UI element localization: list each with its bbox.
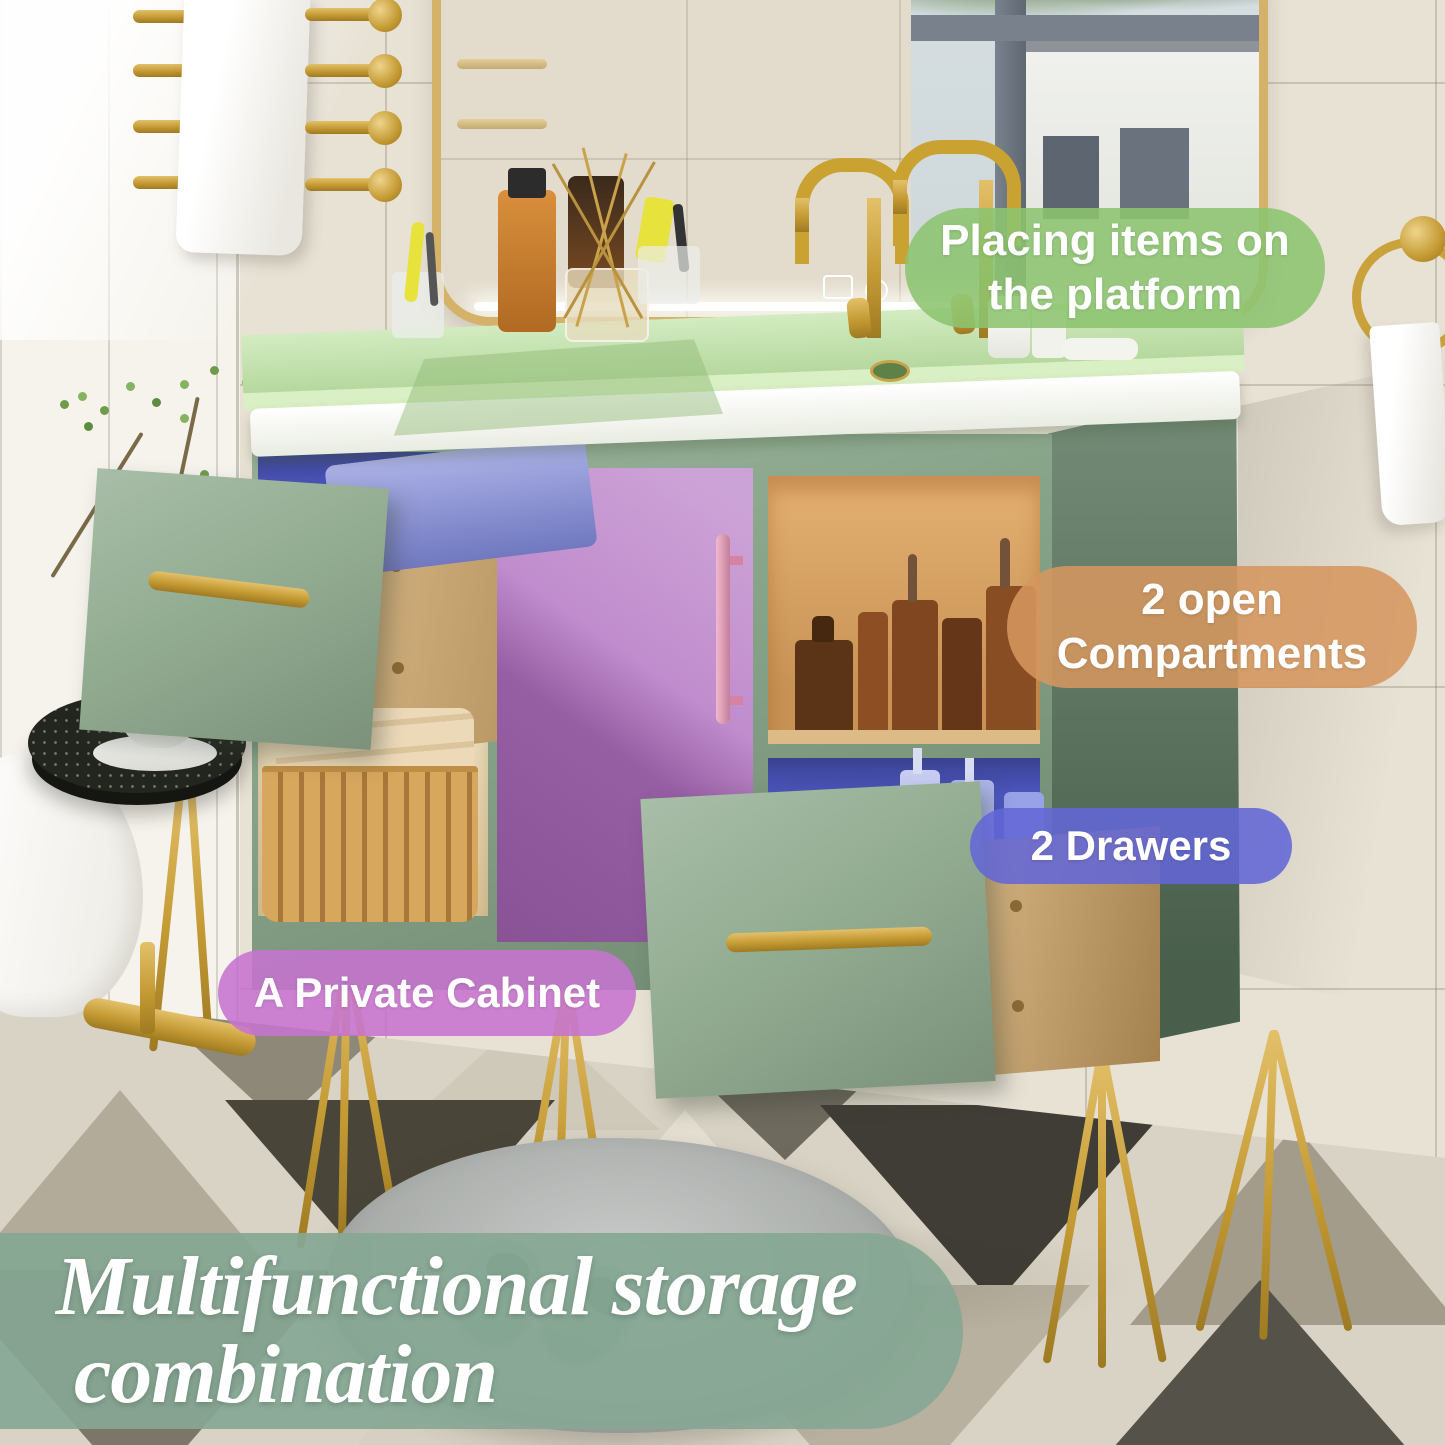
wicker-basket xyxy=(262,766,478,922)
door-handle xyxy=(716,534,730,724)
house-window xyxy=(1120,128,1190,219)
towel-ring-mount xyxy=(1400,216,1445,262)
faucet-spout xyxy=(893,180,907,214)
door-handle-mount xyxy=(729,696,743,705)
product-marketing-image: Placing items on the platform 2 open Com… xyxy=(0,0,1445,1445)
screw-icon xyxy=(1012,1000,1024,1012)
pump-stem xyxy=(965,758,974,784)
badge-private-cabinet: A Private Cabinet xyxy=(218,950,636,1036)
hairpin-leg xyxy=(1050,1048,1160,1368)
house-window xyxy=(1043,136,1099,219)
pump-stem xyxy=(913,748,922,774)
drawer-front-top-left xyxy=(79,468,389,750)
headline-line-2: combination xyxy=(0,1331,963,1419)
badge-label: Placing items on xyxy=(940,214,1290,268)
hanging-towel xyxy=(175,0,310,256)
leg-prong xyxy=(1042,1047,1105,1364)
headline-line-1: Multifunctional storage xyxy=(0,1233,963,1331)
screw-icon xyxy=(392,662,404,674)
hanging-towel xyxy=(1369,322,1445,526)
towel-bar-icon xyxy=(133,64,189,77)
window-frame xyxy=(911,15,1259,41)
badge-label: 2 Drawers xyxy=(1031,823,1232,869)
badge-label: Compartments xyxy=(1057,627,1368,681)
badge-label: the platform xyxy=(988,268,1242,322)
mirror-bar-reflection xyxy=(457,119,547,129)
rack-knob-icon xyxy=(368,54,402,88)
mirror-bar-reflection xyxy=(457,59,547,69)
screw-icon xyxy=(1010,900,1022,912)
leg-prong xyxy=(1098,1047,1167,1363)
faucet-arc xyxy=(795,158,909,264)
rack-knob-icon xyxy=(368,168,402,202)
badge-label: A Private Cabinet xyxy=(254,970,600,1016)
sink-drain-icon xyxy=(870,360,910,382)
badge-label: 2 open xyxy=(1141,573,1283,627)
leg-prong xyxy=(1098,1048,1106,1368)
badge-2-drawers: 2 Drawers xyxy=(970,808,1292,884)
faucet-handle xyxy=(846,297,872,339)
counter-tray xyxy=(1062,338,1138,360)
compartment-warm-light xyxy=(768,476,1040,744)
glass-cup xyxy=(638,246,700,304)
door-handle-mount xyxy=(729,556,743,565)
bottle-cap xyxy=(508,168,546,198)
faucet-spout xyxy=(795,198,809,232)
badge-open-compartments: 2 open Compartments xyxy=(1007,566,1417,688)
hairpin-leg xyxy=(1222,1030,1332,1340)
rack-knob-icon xyxy=(368,111,402,145)
perfume-bottle xyxy=(498,190,556,332)
headline-banner: Multifunctional storage combination xyxy=(0,1233,963,1429)
towel-bar-icon xyxy=(133,10,189,23)
plant-leaves xyxy=(60,400,69,409)
floor-rack-post xyxy=(140,942,155,1034)
badge-placing-items: Placing items on the platform xyxy=(905,208,1325,328)
